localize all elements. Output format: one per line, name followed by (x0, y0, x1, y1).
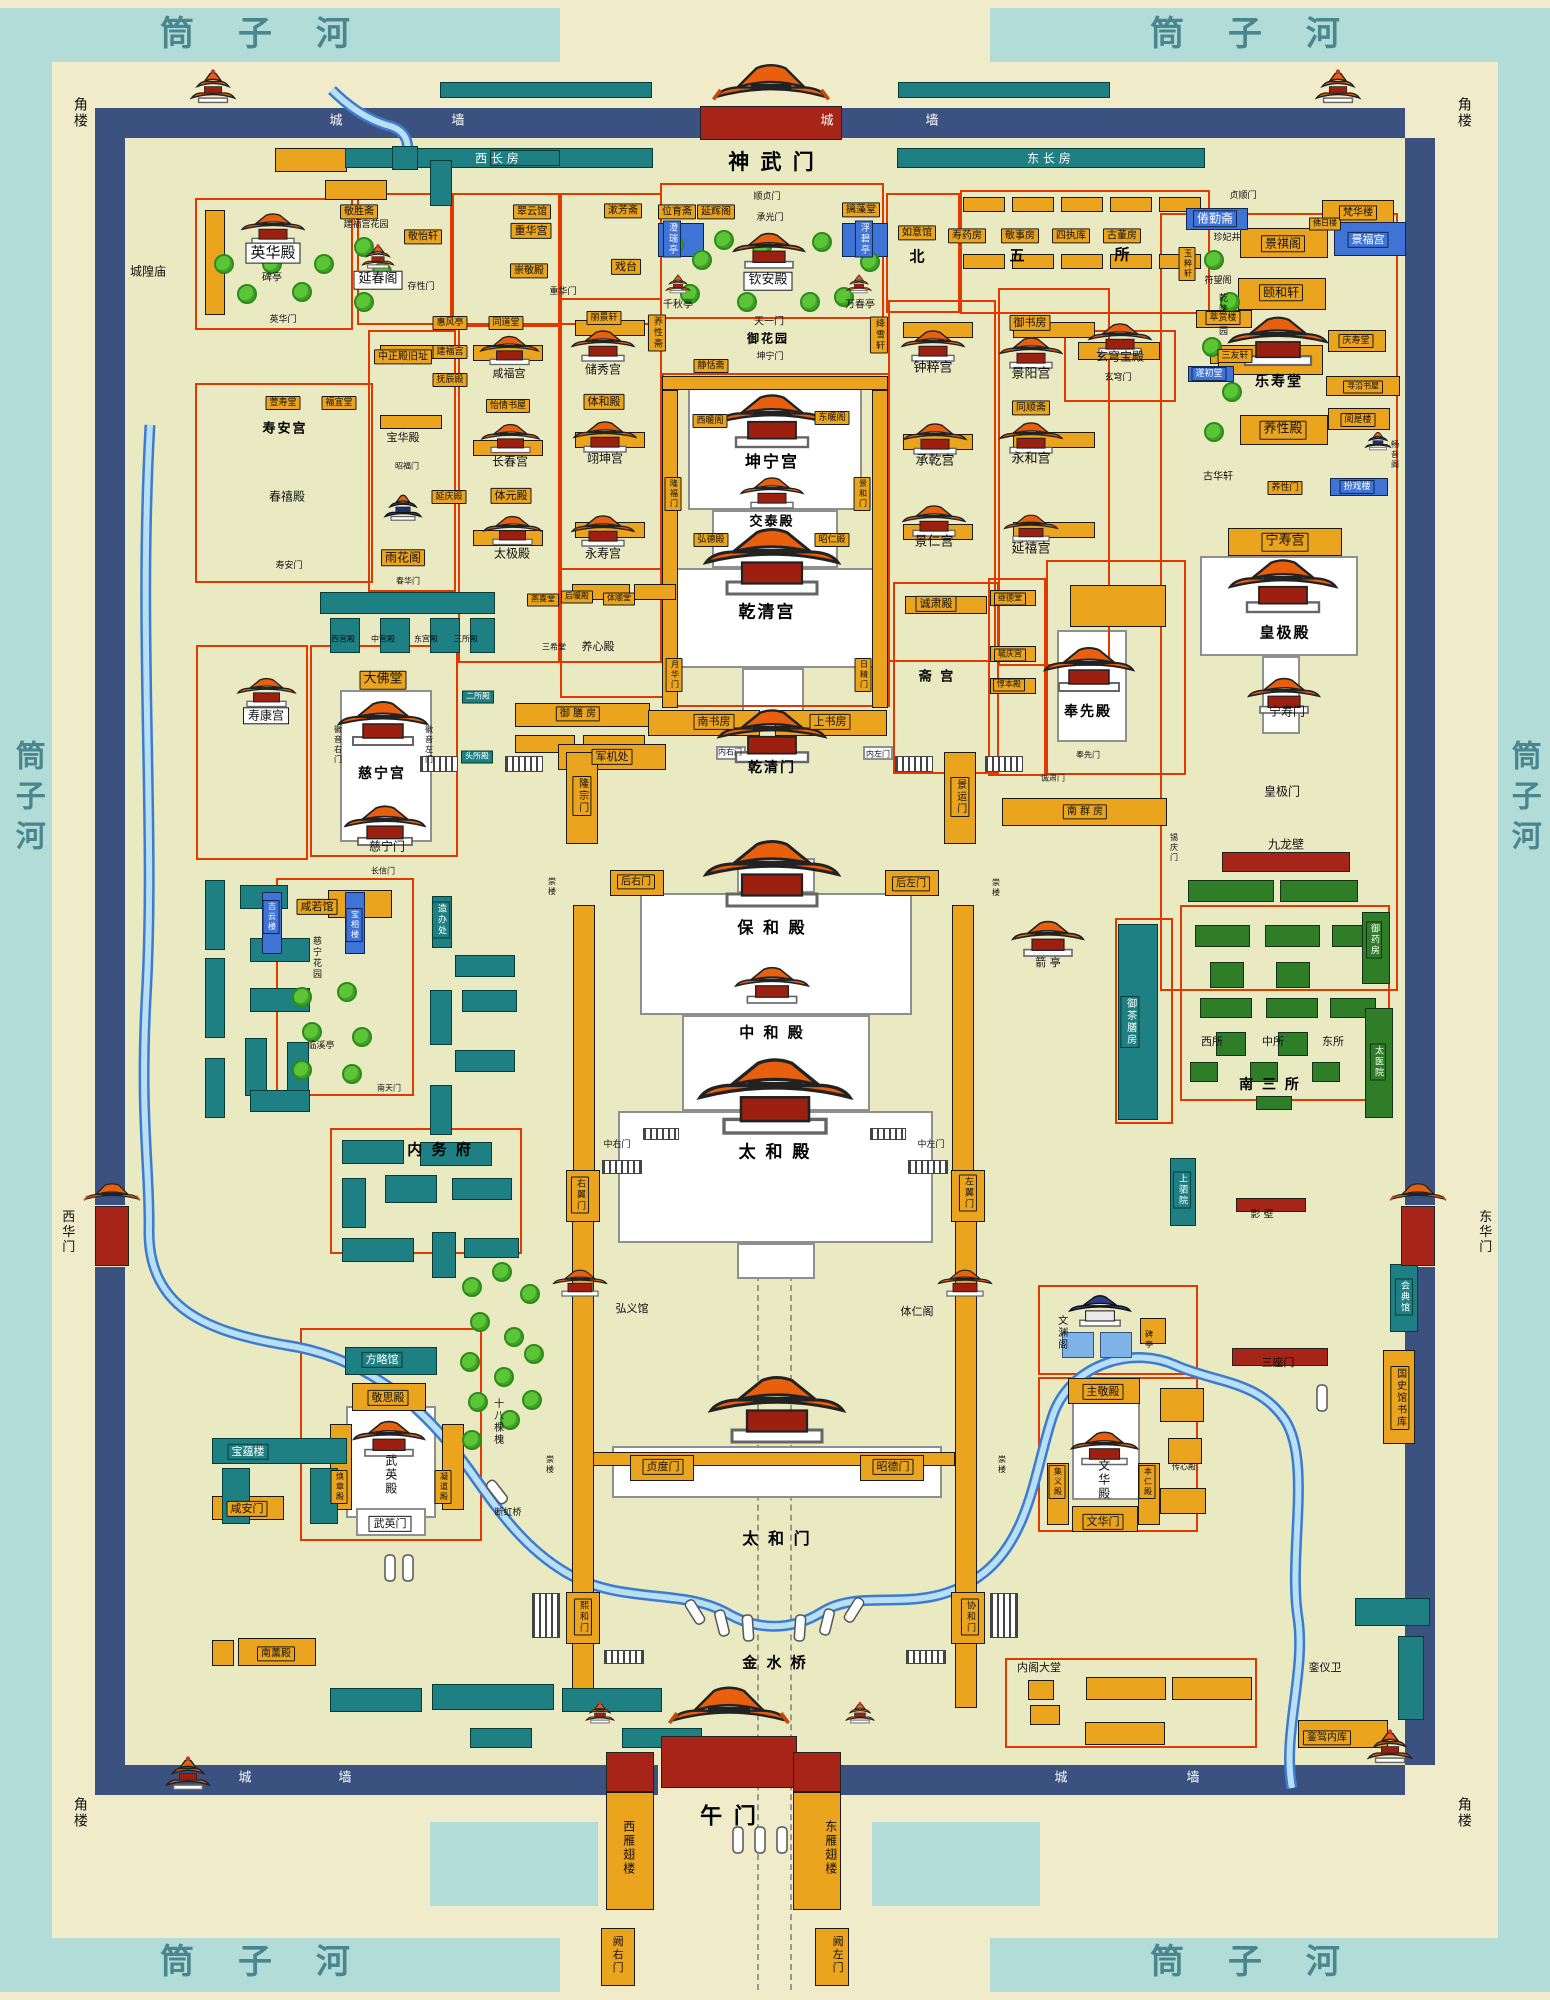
map-label: 北 (909, 249, 926, 266)
map-label: 筒 子 河 (144, 15, 366, 53)
tree-icon (292, 1060, 312, 1080)
map-label: 午 门 (700, 1806, 758, 1831)
map-label: 銮驾内库 (1303, 1730, 1351, 1745)
map-label: 三希堂 (542, 644, 566, 653)
building-teal (470, 1728, 532, 1748)
city-wall (838, 108, 1405, 138)
map-label: 三座门 (1262, 1357, 1295, 1369)
map-label: 咸若馆 (297, 899, 338, 915)
building-gold (1030, 1705, 1060, 1725)
map-label: 内 务 府 (407, 1142, 472, 1159)
building-teal (392, 146, 418, 170)
building-gold (1110, 197, 1152, 212)
map-label: 会典馆 (1395, 1279, 1413, 1316)
map-label: 大佛堂 (359, 671, 406, 690)
tree-icon (1204, 422, 1224, 442)
tree-icon (800, 292, 820, 312)
map-label: 内阁大堂 (1017, 1662, 1061, 1674)
map-label: 寿康宫 (243, 707, 289, 724)
map-label: 如意馆 (898, 225, 936, 240)
map-label: 景仁宫 (914, 536, 953, 551)
xianfugong-icon (477, 332, 542, 368)
building-green (1195, 925, 1250, 947)
map-label: 墙 (451, 115, 464, 130)
map-label: 中左门 (917, 1140, 944, 1150)
map-label: 萱寿堂 (265, 396, 300, 410)
map-label: 翠云馆 (513, 204, 551, 219)
map-label: 福宜堂 (321, 396, 356, 410)
building-teal (430, 1085, 452, 1135)
building-gold (963, 197, 1005, 212)
huangjidian-icon (1223, 552, 1343, 618)
tree-icon (504, 1327, 524, 1347)
yongshougong-icon (568, 511, 638, 550)
map-label: 延辉阁 (697, 204, 735, 219)
tree-icon (812, 232, 832, 252)
map-label: 太医院 (1370, 1044, 1386, 1081)
map-label: 本仁殿 (1139, 1465, 1156, 1499)
map-label: 寿安宫 (262, 423, 307, 438)
map-label: 南 三 所 (1239, 1078, 1301, 1094)
map-label: 贞度门 (643, 1459, 684, 1475)
map-label: 角楼 (71, 1797, 87, 1829)
map-label: 凝道殿 (435, 1470, 452, 1504)
map-label: 弘义馆 (616, 1303, 649, 1315)
building-teal (330, 1688, 422, 1712)
map-label: 东所 (1322, 1036, 1344, 1048)
map-label: 敬事房 (1001, 228, 1039, 243)
taijidian-icon (480, 512, 545, 548)
city-wall (1405, 138, 1435, 1205)
map-label: 弘德殿 (693, 533, 728, 547)
tree-icon (492, 1262, 512, 1282)
map-label: 咸安门 (227, 1501, 268, 1517)
map-label: 存性门 (407, 282, 434, 292)
map-label: 角楼 (71, 97, 87, 129)
map-label: 影 壁 (1250, 1209, 1273, 1220)
building-gold (1160, 1488, 1206, 1514)
map-label: 珍妃井 (1213, 233, 1240, 243)
tree-icon (470, 1312, 490, 1332)
courtyard-wall (988, 578, 1046, 776)
tirenge-icon (935, 1266, 995, 1299)
building-teal (205, 958, 225, 1038)
yinghuadian-icon (238, 209, 308, 248)
map-label: 文渊阁 (1055, 1315, 1066, 1351)
qianqingmen-icon (712, 702, 832, 768)
map-label: 南薰殿 (257, 1646, 295, 1661)
map-label: 内右门 (718, 749, 742, 758)
map-label: 顺贞门 (753, 192, 780, 202)
building-green (1256, 1096, 1292, 1110)
red-gate-wall (1222, 852, 1350, 872)
building-gold (1061, 254, 1103, 269)
map-label: 国史馆书库 (1390, 1366, 1409, 1430)
tree-icon (354, 292, 374, 312)
map-label: 承光门 (756, 213, 783, 223)
map-label: 銮仪卫 (1309, 1662, 1342, 1674)
map-label: 武英殿 (383, 1454, 396, 1496)
map-label: 长信门 (371, 868, 395, 877)
red-gate-wall (1401, 1206, 1435, 1266)
shenwumen-roof-icon (711, 49, 831, 115)
wumen-turret-w-icon (577, 1699, 623, 1724)
building-teal (452, 1178, 512, 1200)
map-label: 承乾宫 (915, 455, 954, 470)
hongyiguan-icon (550, 1266, 610, 1299)
map-label: 颐和轩 (1259, 284, 1303, 301)
map-label: 位育斋 (658, 204, 696, 219)
map-label: 养性殿 (1259, 421, 1306, 440)
building-green (1276, 962, 1310, 988)
map-label: 后暖殿 (561, 591, 593, 604)
map-label: 宝华殿 (387, 432, 420, 444)
map-label: 集义殿 (1049, 1465, 1066, 1499)
axis-dashed-line (790, 1255, 792, 1990)
map-label: 十八棵槐 (491, 1398, 502, 1446)
map-label: 养性斋 (648, 315, 666, 352)
map-label: 延禧宫 (1011, 543, 1050, 558)
map-label: 五 (1009, 248, 1026, 265)
map-label: 乾清门 (748, 761, 796, 777)
tree-icon (737, 292, 757, 312)
building-gold (275, 148, 347, 172)
map-label: 乾清宫 (739, 603, 796, 622)
map-label: 角楼 (1455, 1797, 1471, 1829)
hatched-stand (870, 1128, 906, 1140)
tree-icon (520, 1284, 540, 1304)
map-label: 宝相楼 (346, 908, 363, 942)
map-label: 坤宁门 (756, 352, 783, 362)
building-teal (385, 1175, 437, 1203)
map-label: 徽音左门 (424, 725, 433, 765)
building-teal (455, 1050, 515, 1072)
map-label: 春禧殿 (269, 490, 305, 503)
map-label: 城 (238, 1772, 251, 1787)
hatched-stand (990, 1593, 1018, 1638)
moat (430, 1822, 598, 1906)
xihuamen-roof-icon (83, 1176, 141, 1208)
building-teal (430, 160, 452, 206)
cininggong-icon (333, 695, 433, 750)
map-label: 英华门 (269, 315, 296, 325)
corner-tower-sw-icon (152, 1752, 224, 1792)
building-teal (1355, 1598, 1430, 1626)
map-label: 崇楼 (545, 1455, 554, 1475)
map-label: 崇敬殿 (510, 263, 548, 278)
map-label: 焕章殿 (331, 1470, 348, 1504)
map-label: 抚辰殿 (432, 373, 467, 387)
building-green (1266, 998, 1318, 1018)
fengxiandian-icon (1039, 641, 1139, 696)
building-green (1210, 962, 1244, 988)
map-label: 扮戏楼 (1339, 480, 1374, 494)
map-label: 天一门 (754, 316, 784, 327)
map-label: 右翼门 (571, 1177, 589, 1214)
building-teal (430, 990, 452, 1045)
corner-tower-nw-icon (177, 65, 249, 105)
map-label: 左翼门 (959, 1175, 977, 1212)
building-teal (440, 82, 652, 98)
map-label: 建福宫花园 (343, 220, 388, 230)
building-gold (1160, 1388, 1204, 1422)
map-label: 宁寿门 (1269, 705, 1305, 718)
map-label: 后右门 (617, 874, 655, 889)
tree-icon (462, 1430, 482, 1450)
map-label: 景福宫 (1348, 232, 1389, 248)
map-label: 城 (1054, 1772, 1067, 1787)
map-label: 遂初堂 (1191, 367, 1226, 381)
building-gold (1086, 1677, 1166, 1700)
wanchunting-icon (839, 272, 879, 294)
map-label: 东宫殿 (414, 636, 438, 645)
map-label: 玄穹门 (1104, 373, 1131, 383)
map-label: 重华门 (549, 287, 576, 297)
map-label: 储秀宫 (585, 363, 621, 376)
map-label: 南书房 (694, 714, 735, 730)
map-label: 二所殿 (462, 691, 494, 704)
red-gate-wall (661, 1736, 797, 1788)
building-teal (455, 955, 515, 977)
map-label: 雨花阁 (381, 549, 425, 566)
map-label: 宁寿宫 (1261, 533, 1308, 552)
map-label: 寿安门 (275, 561, 302, 571)
bridge (777, 1827, 787, 1853)
map-label: 惠风亭 (432, 316, 467, 330)
building-gold (1061, 197, 1103, 212)
building-gold (212, 1640, 234, 1666)
map-label: 中 和 殿 (739, 1025, 804, 1042)
map-label: 南天门 (377, 1085, 401, 1094)
building-gold (634, 584, 676, 600)
map-label: 锡庆门 (1169, 833, 1178, 863)
map-label: 体和殿 (584, 394, 625, 410)
map-label: 景阳宫 (1011, 368, 1050, 383)
map-label: 传心殿 (1172, 1464, 1196, 1473)
map-label: 咸福宫 (493, 368, 526, 380)
map-label: 诚肃门 (1041, 775, 1065, 784)
map-label: 皇极门 (1264, 785, 1300, 798)
yanchunge-icon (352, 241, 404, 270)
map-label: 筒子河 (10, 740, 44, 860)
bridge (733, 1827, 743, 1853)
map-label: 九龙壁 (1268, 838, 1304, 851)
zhonghedian-icon (731, 962, 813, 1007)
map-label: 玄穹宝殿 (1096, 350, 1144, 363)
wumen-turret-e-icon (837, 1699, 883, 1724)
red-gate-wall (793, 1752, 841, 1792)
corner-tower-ne-icon (1302, 65, 1374, 105)
tree-icon (500, 1410, 520, 1430)
map-label: 诚肃殿 (916, 596, 957, 612)
yanxigong-icon (1001, 511, 1061, 544)
tree-icon (292, 987, 312, 1007)
building-green (1280, 880, 1358, 902)
building-green (1188, 880, 1274, 902)
map-label: 城 (820, 115, 833, 130)
qianqinggong-icon (697, 519, 847, 602)
building-teal (462, 990, 517, 1012)
donghuamen-roof-icon (1389, 1176, 1447, 1208)
map-label: 怡情书屋 (486, 399, 530, 413)
yikungong-icon (570, 417, 640, 456)
map-label: 南 群 房 (1063, 804, 1107, 819)
tree-icon (337, 982, 357, 1002)
map-label: 东华门 (1476, 1210, 1491, 1255)
map-label: 惇本殿 (993, 679, 1025, 692)
moat (0, 8, 52, 1992)
map-label: 角楼 (1455, 97, 1471, 129)
map-label: 延庆殿 (431, 490, 466, 504)
map-label: 阅是楼 (1340, 413, 1375, 427)
city-wall (95, 108, 707, 138)
map-label: 所 (1114, 247, 1131, 264)
map-label: 隆宗门 (572, 776, 591, 816)
map-label: 庆寿堂 (1338, 334, 1373, 348)
map-label: 中宫殿 (371, 636, 395, 645)
map-label: 长春宫 (492, 455, 528, 468)
building-green (1265, 925, 1320, 947)
map-label: 交泰殿 (749, 516, 794, 531)
map-label: 昭德门 (873, 1459, 914, 1475)
building-gold (380, 415, 442, 429)
map-label: 武英门 (369, 1516, 412, 1532)
map-label: 延春阁 (353, 271, 402, 290)
map-label: 中右门 (603, 1140, 630, 1150)
building-teal (464, 1238, 519, 1258)
red-gate-wall (606, 1752, 654, 1792)
building-teal (250, 1090, 310, 1112)
jiaotaidian-icon (737, 473, 807, 512)
map-label: 奉先门 (1076, 752, 1100, 761)
map-label: 体元殿 (491, 488, 532, 504)
red-gate-wall (95, 1206, 129, 1266)
map-label: 御 膳 房 (556, 706, 600, 721)
tree-icon (1222, 382, 1242, 402)
map-label: 西华门 (59, 1210, 74, 1255)
tree-icon (468, 1392, 488, 1412)
city-wall (95, 138, 125, 1205)
map-label: 隆福门 (665, 477, 682, 511)
map-label: 御书房 (1010, 315, 1051, 331)
map-label: 阙左门 (831, 1936, 843, 1975)
map-label: 城隍庙 (130, 265, 166, 278)
map-label: 墙 (338, 1772, 351, 1787)
map-label: 上书房 (810, 714, 851, 730)
map-label: 丽景轩 (586, 311, 621, 325)
map-label: 月华门 (666, 658, 683, 692)
map-label: 方略馆 (362, 1352, 403, 1368)
map-label: 寻沿书屋 (1343, 381, 1383, 394)
yuhuage-icon (373, 489, 433, 522)
building-gold (963, 254, 1005, 269)
map-label: 协和门 (961, 1599, 979, 1636)
building-gold (1085, 1722, 1165, 1745)
map-label: 梵华楼 (1339, 205, 1377, 220)
map-label: 内左门 (866, 751, 890, 760)
qianqiuting-icon (658, 272, 698, 294)
building-gold (573, 905, 595, 1185)
map-label: 翊坤宫 (587, 452, 623, 465)
map-label: 古华轩 (1203, 471, 1233, 482)
map-label: 造办处 (432, 902, 450, 939)
chuxiugong-icon (568, 326, 638, 365)
wenyuange-icon (1064, 1290, 1136, 1330)
map-label: 神 武 门 (728, 151, 816, 175)
hatched-stand (643, 1128, 679, 1140)
corner-tower-se-icon (1354, 1725, 1426, 1765)
map-label: 军机处 (592, 749, 633, 765)
map-label: 金 水 桥 (742, 1655, 807, 1672)
map-label: 头所殿 (461, 751, 493, 764)
map-label: 崇楼 (547, 877, 556, 897)
tree-icon (460, 1352, 480, 1372)
hatched-stand (908, 1160, 948, 1174)
map-label: 西 长 房 (475, 152, 519, 165)
building-gold (1070, 585, 1166, 627)
map-label: 三友轩 (1217, 349, 1252, 363)
map-label: 熙和门 (574, 1599, 592, 1636)
building-gold (872, 390, 888, 708)
map-label: 养心殿 (582, 641, 615, 653)
map-label: 后左门 (892, 876, 930, 891)
axis-dashed-line (757, 1255, 759, 1990)
tree-icon (1204, 250, 1224, 270)
building-teal (432, 1684, 554, 1710)
tree-icon (292, 282, 312, 302)
map-label: 保 和 殿 (737, 919, 806, 937)
building-gold (1028, 1680, 1054, 1700)
map-label: 东 长 房 (1027, 152, 1071, 165)
map-label: 文华殿 (1096, 1459, 1109, 1501)
map-label: 玉粹轩 (1179, 247, 1196, 281)
tree-icon (462, 1277, 482, 1297)
map-label: 上驷院 (1173, 1172, 1191, 1209)
pond (1062, 1332, 1094, 1358)
map-label: 城 (329, 115, 342, 130)
map-label: 筒 子 河 (1134, 1943, 1356, 1981)
map-label: 吉云楼 (263, 900, 280, 934)
map-label: 体顺堂 (603, 593, 635, 606)
map-label: 寿药房 (948, 228, 986, 243)
building-green (1312, 1062, 1340, 1082)
building-teal (1398, 1636, 1424, 1720)
map-label: 戏台 (611, 259, 641, 275)
map-label: 筒子河 (1506, 740, 1540, 860)
map-label: 日精门 (855, 658, 872, 692)
building-gold (1012, 197, 1054, 212)
map-label: 西雁翅楼 (621, 1820, 634, 1876)
map-label: 同顺斋 (1012, 400, 1050, 415)
map-label: 昭仁殿 (814, 533, 849, 547)
map-label: 漱芳斋 (604, 203, 642, 218)
building-green (1190, 1062, 1218, 1082)
map-label: 主敬殿 (1083, 1384, 1124, 1400)
map-label: 太 和 门 (742, 1530, 811, 1548)
zhongcuigong-icon (898, 326, 968, 365)
map-label: 墙 (925, 115, 938, 130)
jianting-icon (1008, 916, 1088, 960)
forbidden-city-map: 筒 子 河筒 子 河筒 子 河筒 子 河筒子河筒子河角楼角楼角楼角楼城墙城墙城墙… (0, 0, 1550, 2000)
map-label: 萃赏楼 (1205, 311, 1240, 325)
moat (872, 1822, 1040, 1906)
map-label: 继德堂 (994, 593, 1026, 606)
tree-icon (214, 254, 234, 274)
building-gold (952, 905, 974, 1185)
moat (1498, 8, 1550, 1992)
building-gold (325, 180, 387, 200)
map-label: 重华宫 (511, 223, 552, 239)
